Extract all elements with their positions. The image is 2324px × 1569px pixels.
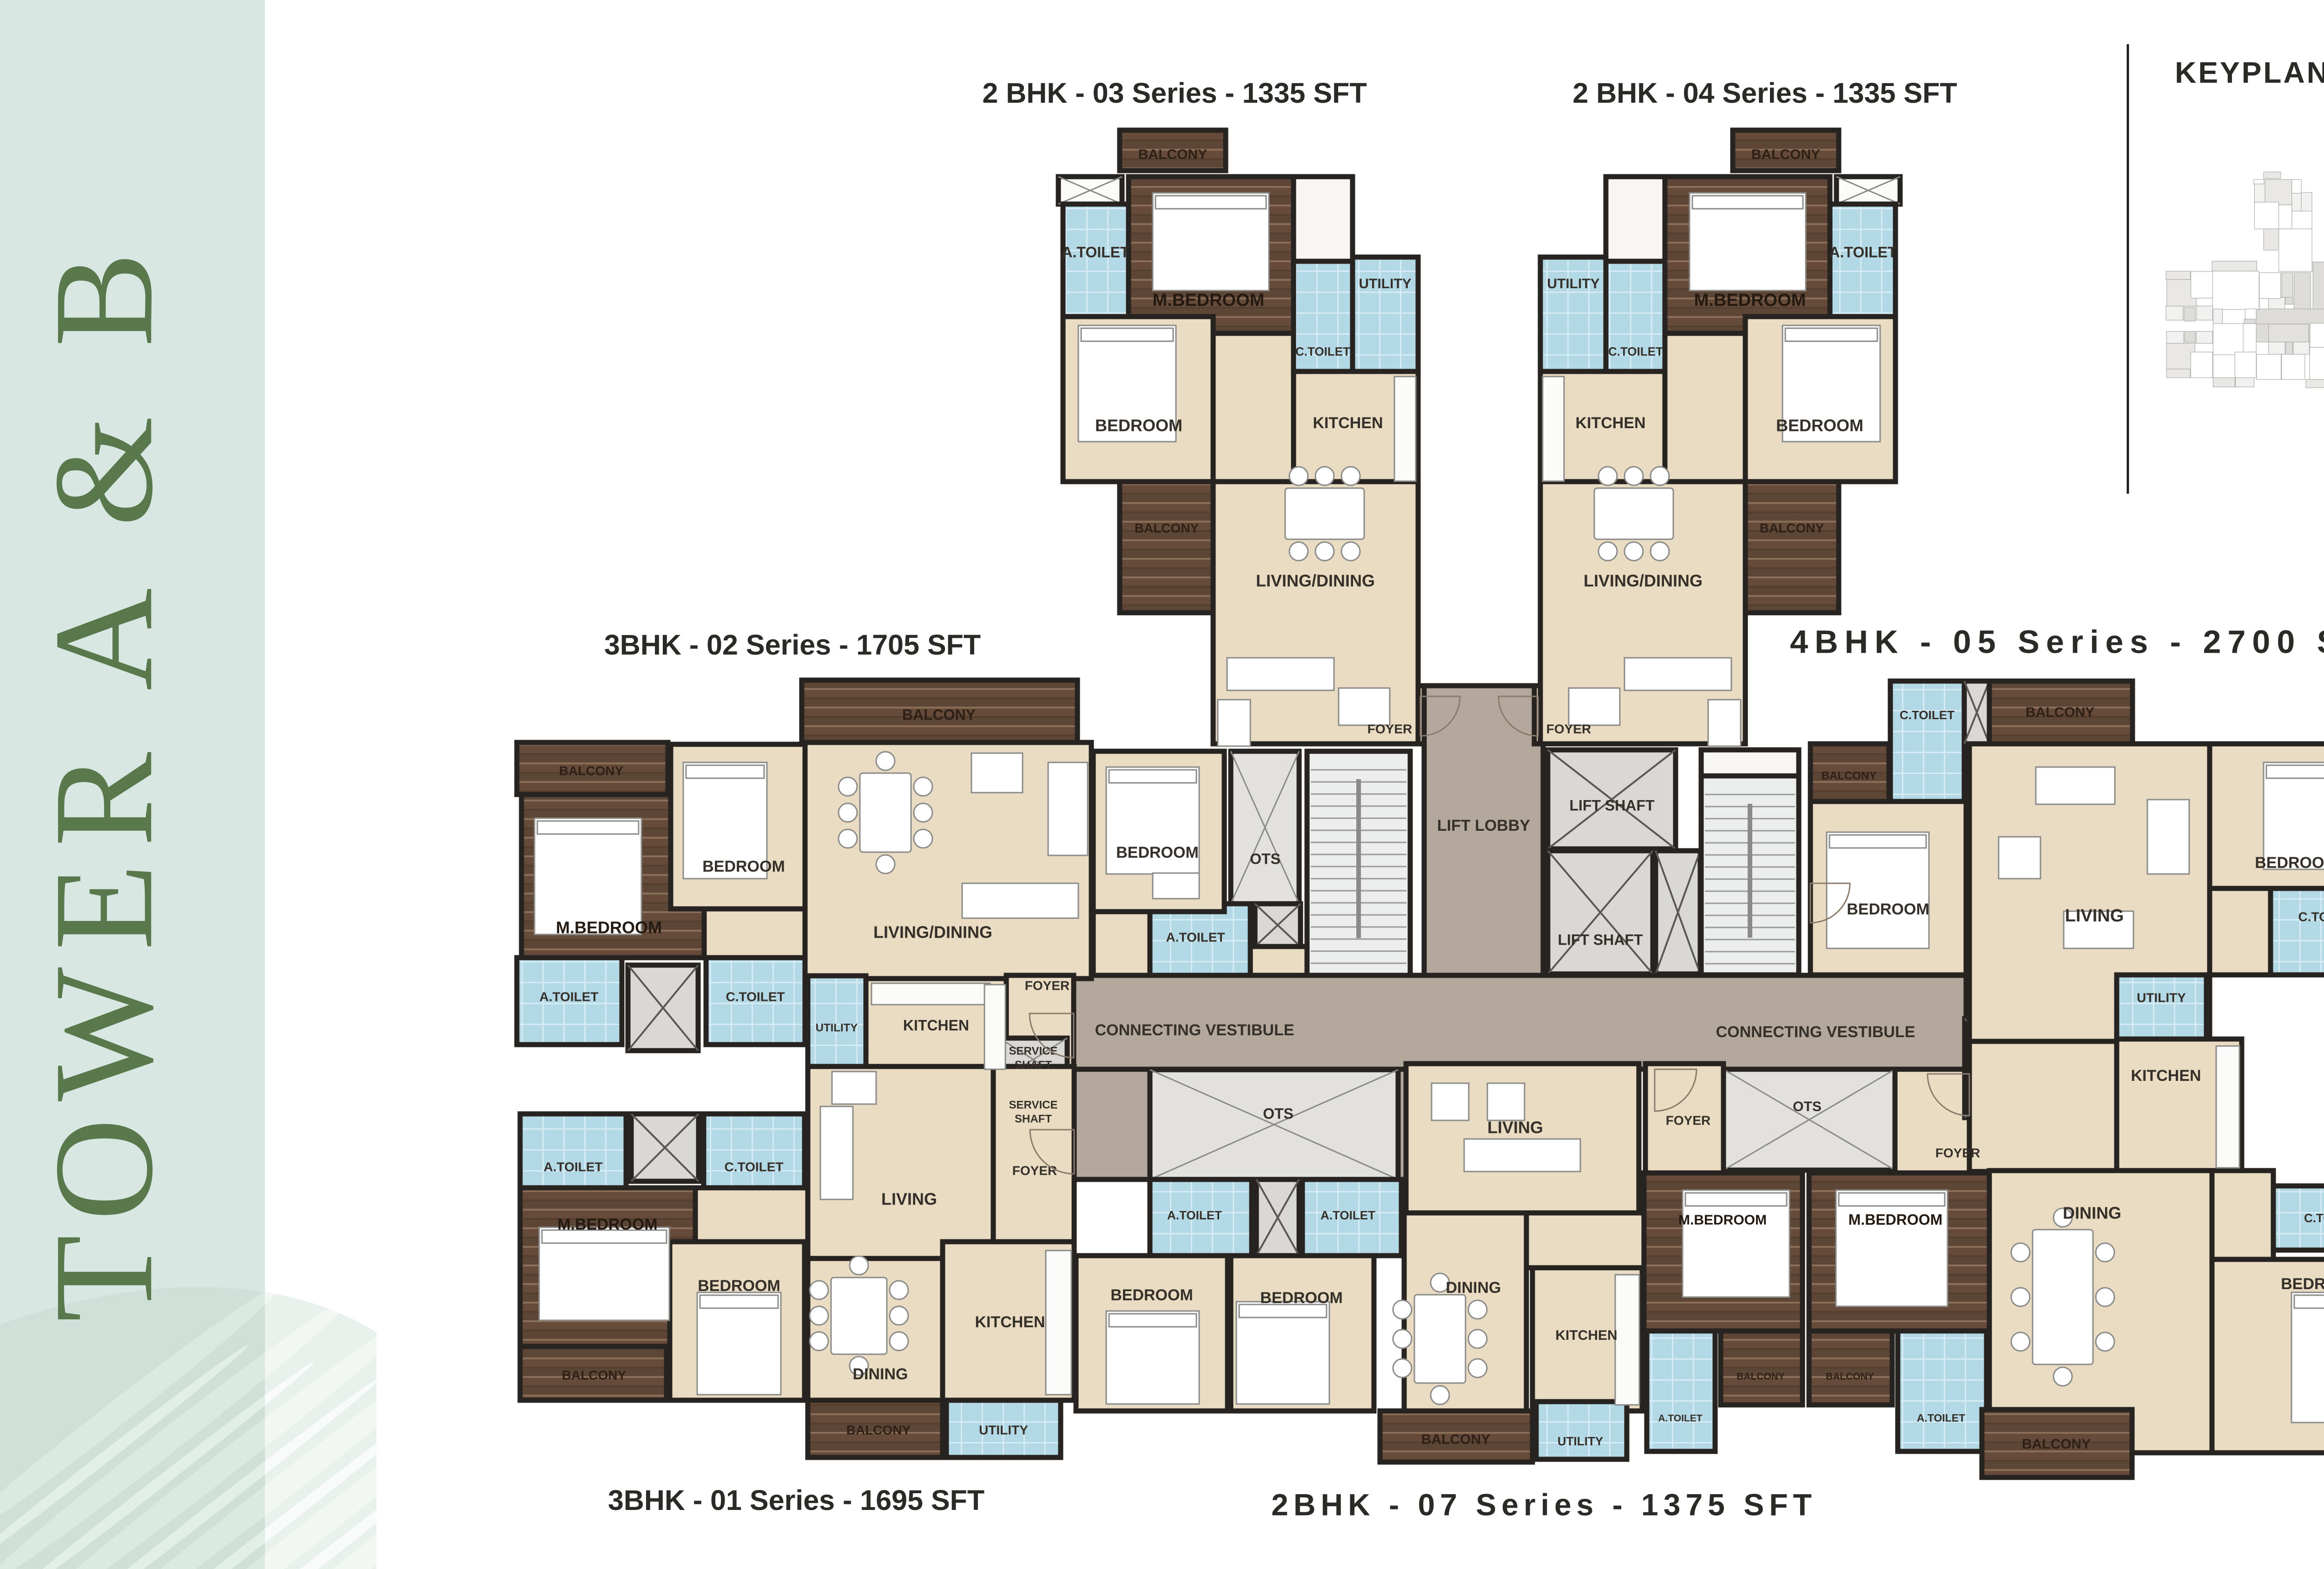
svg-text:M.BEDROOM: M.BEDROOM (1678, 1212, 1767, 1228)
svg-text:OTS: OTS (1250, 850, 1281, 867)
svg-text:BEDROOM: BEDROOM (1116, 844, 1199, 861)
svg-text:M.BEDROOM: M.BEDROOM (1694, 291, 1806, 310)
svg-text:BEDROOM: BEDROOM (1847, 900, 1929, 918)
svg-text:BEDROOM: BEDROOM (1260, 1289, 1343, 1307)
svg-text:BEDROOM: BEDROOM (1776, 416, 1863, 435)
svg-text:BALCONY: BALCONY (559, 763, 624, 778)
svg-text:LIVING: LIVING (1487, 1118, 1543, 1137)
svg-text:KITCHEN: KITCHEN (975, 1313, 1045, 1331)
svg-text:DINING: DINING (853, 1365, 908, 1383)
svg-text:2BHK - 07 Series - 1375 SFT: 2BHK - 07 Series - 1375 SFT (1271, 1487, 1817, 1522)
svg-text:DINING: DINING (2063, 1204, 2121, 1223)
svg-text:BALCONY: BALCONY (1751, 147, 1820, 162)
svg-text:TOWER A & B: TOWER A & B (25, 235, 182, 1322)
svg-text:KITCHEN: KITCHEN (1555, 1328, 1617, 1343)
svg-text:DINING: DINING (1446, 1279, 1501, 1297)
svg-text:BALCONY: BALCONY (2026, 705, 2094, 720)
svg-text:LIVING: LIVING (2065, 906, 2124, 926)
svg-text:LIVING/DINING: LIVING/DINING (1584, 571, 1703, 590)
svg-text:BEDROOM: BEDROOM (2281, 1275, 2324, 1293)
svg-text:UTILITY: UTILITY (816, 1021, 858, 1034)
svg-text:4BHK - 05 Series - 2700 SFT: 4BHK - 05 Series - 2700 SFT (1790, 623, 2324, 660)
svg-text:BEDROOM: BEDROOM (1110, 1286, 1193, 1304)
svg-text:M.BEDROOM: M.BEDROOM (556, 918, 662, 937)
svg-text:LIVING/DINING: LIVING/DINING (1256, 571, 1375, 590)
svg-text:SERVICE: SERVICE (1009, 1099, 1058, 1111)
svg-text:A.TOILET: A.TOILET (1829, 244, 1897, 260)
svg-text:FOYER: FOYER (1012, 1163, 1057, 1178)
svg-text:FOYER: FOYER (1935, 1145, 1980, 1160)
svg-text:OTS: OTS (1793, 1099, 1822, 1114)
svg-text:A.TOILET: A.TOILET (539, 989, 598, 1004)
svg-text:C.TOILET: C.TOILET (2304, 1211, 2324, 1225)
svg-text:C.TOILET: C.TOILET (1295, 344, 1350, 358)
svg-text:KITCHEN: KITCHEN (1313, 414, 1383, 432)
svg-text:BALCONY: BALCONY (562, 1368, 627, 1382)
svg-text:SHAFT: SHAFT (1015, 1059, 1052, 1071)
svg-text:KITCHEN: KITCHEN (1575, 414, 1645, 432)
svg-text:UTILITY: UTILITY (979, 1423, 1028, 1437)
svg-text:C.TOILET: C.TOILET (1900, 708, 1954, 722)
svg-text:SHAFT: SHAFT (1015, 1112, 1052, 1125)
svg-text:A.TOILET: A.TOILET (543, 1159, 602, 1174)
svg-text:3BHK - 01 Series - 1695 SFT: 3BHK - 01 Series - 1695 SFT (608, 1484, 984, 1516)
svg-text:UTILITY: UTILITY (1547, 276, 1599, 291)
svg-text:M.BEDROOM: M.BEDROOM (1153, 291, 1265, 310)
svg-text:UTILITY: UTILITY (1359, 276, 1411, 291)
svg-text:A.TOILET: A.TOILET (1320, 1208, 1375, 1222)
svg-text:FOYER: FOYER (1025, 978, 1070, 993)
svg-text:BALCONY: BALCONY (2022, 1437, 2091, 1452)
svg-text:BALCONY: BALCONY (1138, 147, 1207, 162)
svg-text:BALCONY: BALCONY (1822, 769, 1877, 782)
svg-text:C.TOILET: C.TOILET (1608, 344, 1663, 358)
svg-text:C.TOILET: C.TOILET (2298, 909, 2324, 924)
svg-text:M.BEDROOM: M.BEDROOM (557, 1216, 657, 1233)
svg-text:KITCHEN: KITCHEN (903, 1017, 969, 1033)
svg-text:BALCONY: BALCONY (1736, 1371, 1785, 1382)
svg-text:BEDROOM: BEDROOM (702, 858, 785, 875)
svg-text:LIVING/DINING: LIVING/DINING (873, 923, 992, 942)
svg-text:UTILITY: UTILITY (1558, 1434, 1603, 1448)
svg-text:BALCONY: BALCONY (902, 706, 976, 723)
svg-text:2 BHK - 03 Series - 1335 SFT: 2 BHK - 03 Series - 1335 SFT (982, 77, 1367, 109)
svg-text:2 BHK - 04 Series - 1335 SFT: 2 BHK - 04 Series - 1335 SFT (1572, 77, 1957, 109)
svg-text:LIVING: LIVING (881, 1190, 937, 1209)
svg-text:BALCONY: BALCONY (1760, 521, 1824, 535)
svg-text:BEDROOM: BEDROOM (2255, 854, 2324, 872)
svg-text:BEDROOM: BEDROOM (1095, 416, 1182, 435)
svg-text:BALCONY: BALCONY (1421, 1432, 1490, 1447)
svg-text:A.TOILET: A.TOILET (1166, 930, 1225, 944)
svg-text:FOYER: FOYER (1367, 722, 1412, 736)
svg-text:OTS: OTS (1263, 1105, 1294, 1122)
svg-text:A.TOILET: A.TOILET (1917, 1412, 1965, 1424)
svg-text:FOYER: FOYER (1666, 1113, 1710, 1127)
svg-text:UTILITY: UTILITY (2137, 990, 2186, 1005)
svg-text:LIFT LOBBY: LIFT LOBBY (1437, 817, 1531, 834)
svg-text:M.BEDROOM: M.BEDROOM (1849, 1211, 1943, 1228)
svg-text:CONNECTING VESTIBULE: CONNECTING VESTIBULE (1716, 1023, 1915, 1041)
svg-text:A.TOILET: A.TOILET (1062, 244, 1129, 260)
svg-text:BALCONY: BALCONY (846, 1423, 911, 1437)
svg-text:LIFT SHAFT: LIFT SHAFT (1558, 931, 1643, 948)
svg-text:FOYER: FOYER (1546, 722, 1591, 736)
svg-text:C.TOILET: C.TOILET (724, 1159, 783, 1174)
svg-text:A.TOILET: A.TOILET (1167, 1208, 1222, 1222)
svg-text:3BHK - 02 Series - 1705 SFT: 3BHK - 02 Series - 1705 SFT (604, 629, 981, 661)
svg-text:BALCONY: BALCONY (1826, 1371, 1874, 1382)
svg-text:KITCHEN: KITCHEN (2131, 1067, 2201, 1085)
svg-text:A.TOILET: A.TOILET (1658, 1413, 1702, 1424)
svg-text:BALCONY: BALCONY (1135, 521, 1199, 535)
svg-text:CONNECTING VESTIBULE: CONNECTING VESTIBULE (1095, 1021, 1294, 1039)
svg-text:C.TOILET: C.TOILET (726, 989, 785, 1004)
svg-text:LIFT SHAFT: LIFT SHAFT (1569, 797, 1655, 814)
svg-text:KEYPLAN: KEYPLAN (2175, 56, 2324, 89)
svg-text:BEDROOM: BEDROOM (698, 1277, 780, 1295)
